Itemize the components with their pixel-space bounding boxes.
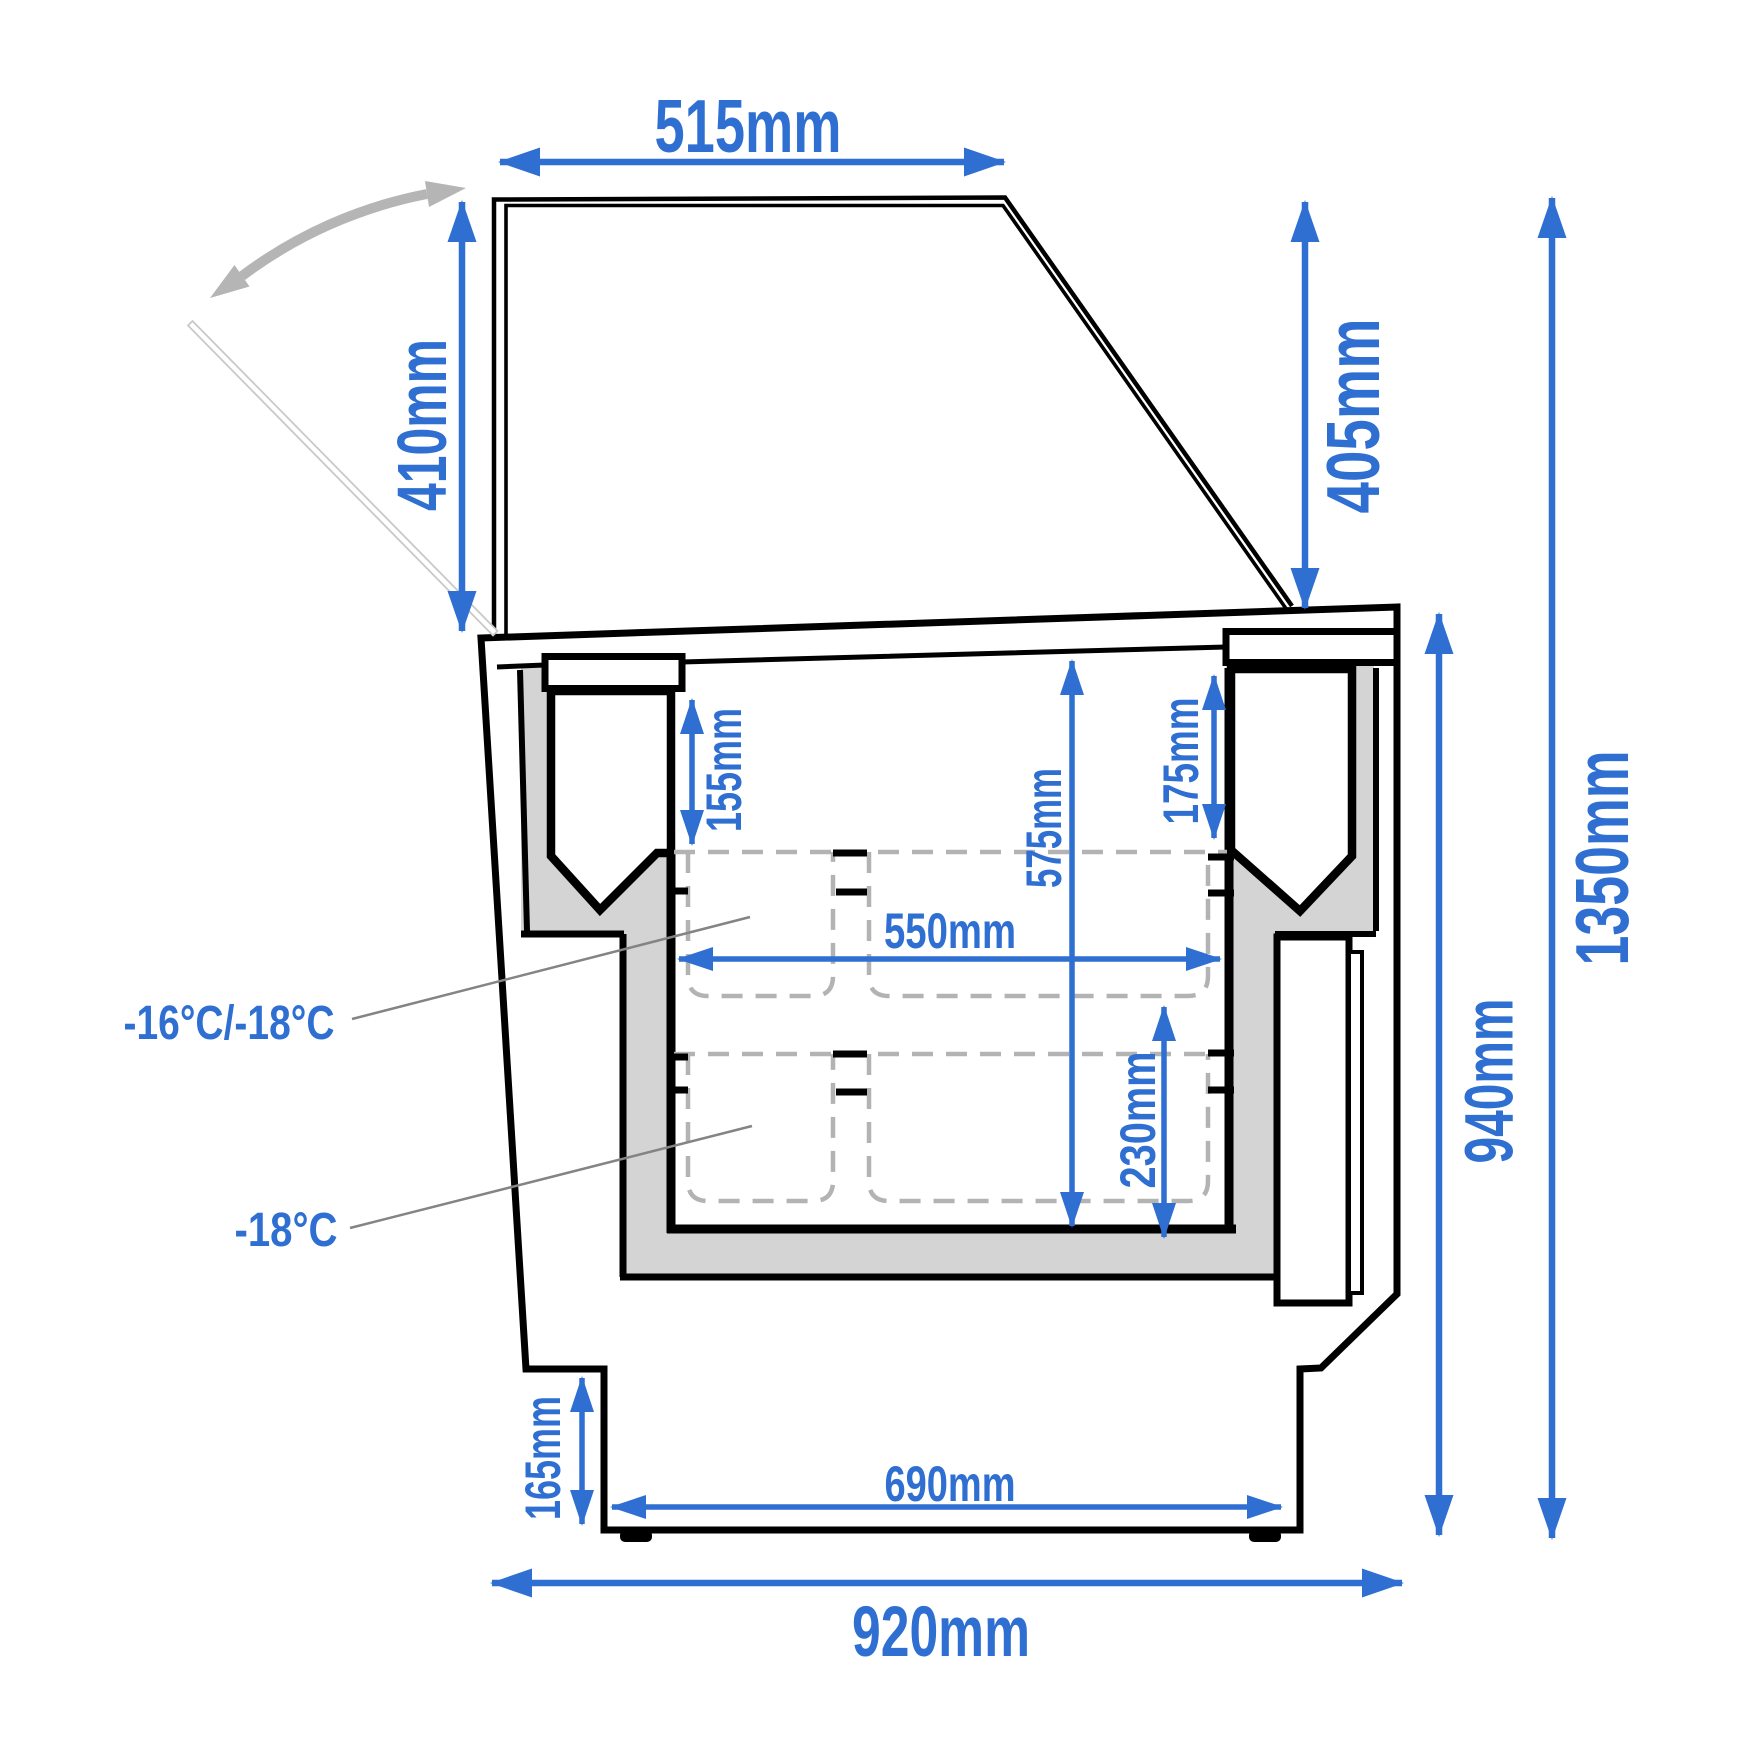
svg-text:515mm: 515mm (655, 84, 842, 168)
svg-text:155mm: 155mm (696, 708, 752, 832)
svg-text:230mm: 230mm (1110, 1052, 1166, 1189)
svg-text:1350mm: 1350mm (1560, 751, 1644, 966)
svg-text:920mm: 920mm (852, 1593, 1030, 1672)
svg-text:550mm: 550mm (884, 903, 1016, 959)
svg-text:410mm: 410mm (383, 339, 461, 511)
svg-text:165mm: 165mm (515, 1396, 571, 1520)
svg-text:-18°C: -18°C (235, 1204, 338, 1257)
svg-text:405mm: 405mm (1311, 319, 1395, 514)
svg-text:-16°C/-18°C: -16°C/-18°C (124, 997, 335, 1050)
svg-text:575mm: 575mm (1016, 768, 1072, 888)
svg-text:690mm: 690mm (885, 1456, 1016, 1512)
svg-text:940mm: 940mm (1451, 999, 1528, 1164)
svg-text:175mm: 175mm (1153, 698, 1209, 825)
